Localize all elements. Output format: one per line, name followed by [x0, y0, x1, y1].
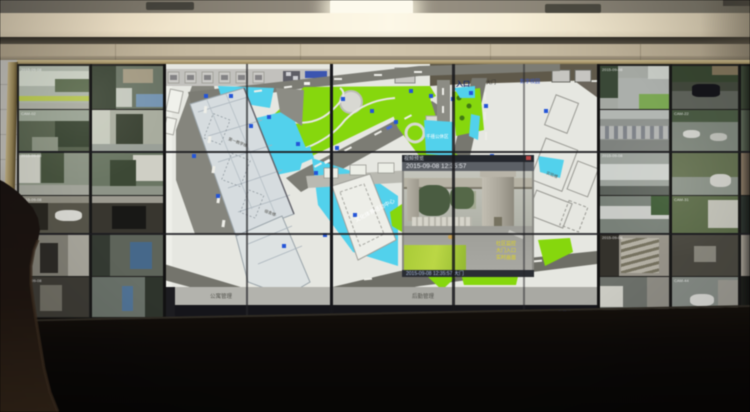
svg-text:后勤管理: 后勤管理 [412, 292, 435, 300]
svg-text:千禧公休区: 千禧公休区 [426, 133, 449, 140]
svg-text:入口: 入口 [455, 80, 470, 88]
svg-text:公寓管理: 公寓管理 [210, 292, 233, 300]
svg-text:大门: 大门 [486, 79, 496, 86]
